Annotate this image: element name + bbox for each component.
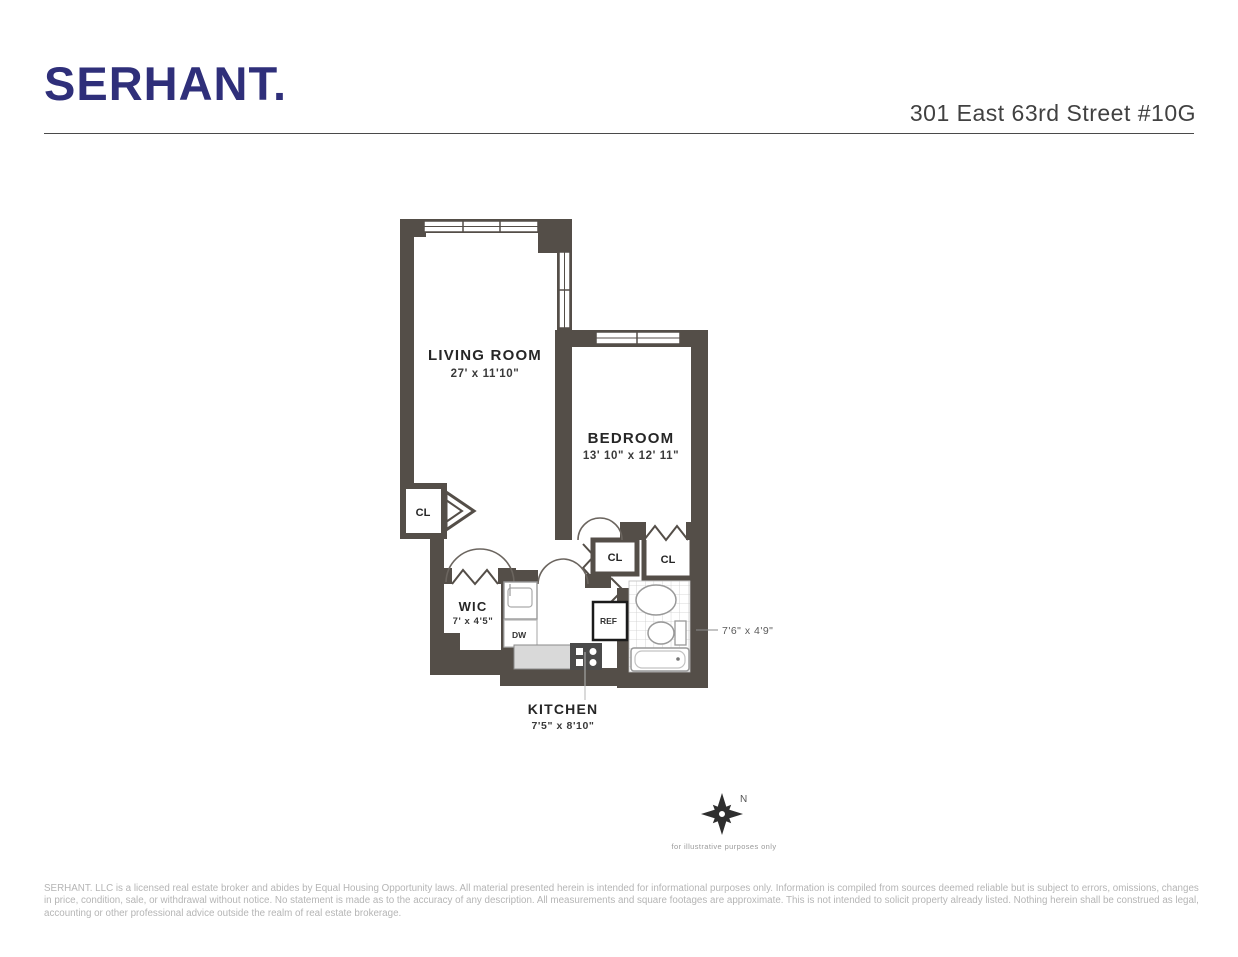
- bathtub-icon: [631, 648, 689, 671]
- bedroom-dims: 13' 10" x 12' 11": [583, 450, 679, 462]
- living-room-top-window: [424, 221, 538, 232]
- wic-dims: 7' x 4'5": [453, 616, 494, 627]
- living-room-closet: [403, 486, 474, 536]
- closet-label-hall: CL: [608, 552, 623, 564]
- living-room-dims: 27' x 11'10": [451, 368, 520, 380]
- serhant-logo: SERHANT.: [44, 56, 287, 111]
- floor-plan: DW REF LIVING ROOM 27' x 11'10" BEDROOM …: [390, 210, 830, 860]
- floorplan-page: SERHANT. 301 East 63rd Street #10G: [0, 0, 1238, 957]
- kitchen-sink-icon: [504, 582, 537, 619]
- property-address: 301 East 63rd Street #10G: [910, 100, 1196, 127]
- toilet-icon: [648, 621, 686, 645]
- dishwasher: DW: [504, 620, 537, 647]
- legal-disclaimer: SERHANT. LLC is a licensed real estate b…: [44, 883, 1199, 920]
- wic-label: WIC: [459, 599, 488, 614]
- header-divider: [44, 133, 1194, 134]
- compass-note: for illustrative purposes only: [672, 842, 777, 851]
- kitchen-counter: [514, 645, 574, 669]
- bedroom-label: BEDROOM: [588, 430, 675, 447]
- kitchen-label: KITCHEN: [528, 701, 599, 717]
- compass-north-label: N: [740, 794, 747, 805]
- bedroom-window: [596, 332, 680, 344]
- living-room-side-window: [559, 252, 570, 328]
- bathroom: [629, 581, 690, 672]
- dishwasher-label: DW: [512, 630, 527, 640]
- bedroom-closet: [644, 526, 692, 578]
- closet-label-living: CL: [416, 507, 431, 519]
- living-room-label: LIVING ROOM: [428, 347, 542, 364]
- closet-label-bedroom: CL: [661, 554, 676, 566]
- kitchen-dims: 7'5" x 8'10": [531, 720, 594, 732]
- compass-icon: N: [701, 793, 747, 835]
- bathroom-dims: 7'6" x 4'9": [722, 625, 773, 637]
- refrigerator: REF: [593, 602, 627, 640]
- stove-icon: [570, 643, 602, 670]
- kitchen-fixtures: DW REF: [504, 582, 627, 670]
- refrigerator-label: REF: [600, 616, 617, 626]
- bath-sink-icon: [636, 585, 676, 615]
